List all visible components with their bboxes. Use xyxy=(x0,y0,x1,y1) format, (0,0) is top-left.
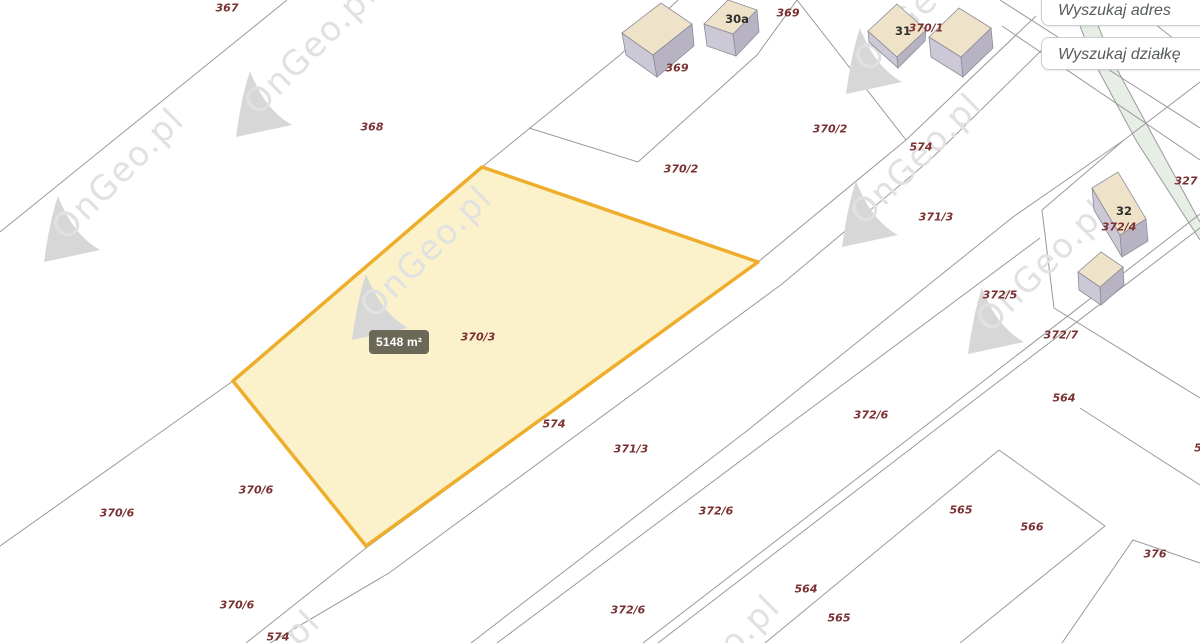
search-parcel-input[interactable] xyxy=(1056,38,1200,71)
watermark-logo: OnGeo.pl xyxy=(640,587,788,643)
parcel-boundary xyxy=(1080,408,1200,485)
parcel-label: 566 xyxy=(1021,521,1044,534)
svg-text:OnGeo.pl: OnGeo.pl xyxy=(44,100,192,248)
parcel-boundary xyxy=(765,450,999,643)
search-address-input[interactable] xyxy=(1056,0,1200,27)
parcel-label: 368 xyxy=(361,121,384,134)
parcel-label: 372/6 xyxy=(699,505,734,518)
building-label: 30a xyxy=(725,12,749,26)
area-tooltip: 5148 m² xyxy=(369,330,429,354)
parcel-label: 327 xyxy=(1175,175,1198,188)
parcel-label: 370/6 xyxy=(220,599,255,612)
parcel-label: 371/3 xyxy=(919,211,954,224)
highlighted-parcel[interactable] xyxy=(233,167,758,546)
parcel-label: 370/3 xyxy=(461,331,496,344)
parcel-label: 376 xyxy=(1144,548,1167,561)
watermark-logo: OnGeo.pl xyxy=(236,0,384,137)
parcel-label: 372/7 xyxy=(1044,329,1079,342)
building-label: 31 xyxy=(895,24,911,38)
parcel-label: 370/6 xyxy=(239,484,274,497)
parcel-boundary xyxy=(960,526,1105,643)
watermark-logo: OnGeo.pl xyxy=(842,85,990,247)
parcel-boundary xyxy=(1062,540,1200,643)
parcel-label: 370/6 xyxy=(100,507,135,520)
svg-text:OnGeo.pl: OnGeo.pl xyxy=(842,85,990,233)
parcel-boundary xyxy=(658,228,1200,643)
parcel-label: 372/5 xyxy=(983,289,1018,302)
parcel-label: 369 xyxy=(777,7,800,20)
parcel-label: 370/2 xyxy=(813,123,848,136)
parcel-label: 564 xyxy=(1053,392,1076,405)
parcel-label: 372/6 xyxy=(611,604,646,617)
parcel-label: 564 xyxy=(795,583,818,596)
parcel-label: 370/2 xyxy=(664,163,699,176)
parcel-label: 370/1 xyxy=(909,22,944,35)
parcel-label: 372/6 xyxy=(854,409,889,422)
map-canvas[interactable]: OnGeo.plOnGeo.plOnGeo.plOnGeo.plOnGeo.pl… xyxy=(0,0,1200,643)
parcel-label: 371/3 xyxy=(614,443,649,456)
parcel-label: 574 xyxy=(910,141,933,154)
parcel-label: 565 xyxy=(828,612,851,625)
parcel-label: 574 xyxy=(267,631,290,643)
parcel-label: 367 xyxy=(216,2,239,15)
map-stage: OnGeo.plOnGeo.plOnGeo.plOnGeo.plOnGeo.pl… xyxy=(0,0,1200,643)
building-label: 32 xyxy=(1116,204,1132,218)
parcel-label: 565 xyxy=(950,504,973,517)
parcel-boundary xyxy=(1054,308,1200,398)
svg-text:OnGeo.pl: OnGeo.pl xyxy=(236,0,384,123)
parcel-boundary xyxy=(0,381,233,546)
watermark-logo: OnGeo.pl xyxy=(44,100,192,262)
parcel-boundary xyxy=(999,450,1105,526)
search-address-box xyxy=(1041,0,1200,26)
search-parcel-box xyxy=(1041,37,1200,70)
parcel-label: 5 xyxy=(1194,442,1200,455)
parcel-boundary xyxy=(529,128,638,162)
parcel-label: 372/4 xyxy=(1102,221,1137,234)
parcel-label: 369 xyxy=(666,62,689,75)
parcel-label: 574 xyxy=(543,418,566,431)
svg-text:OnGeo.pl: OnGeo.pl xyxy=(640,587,788,643)
